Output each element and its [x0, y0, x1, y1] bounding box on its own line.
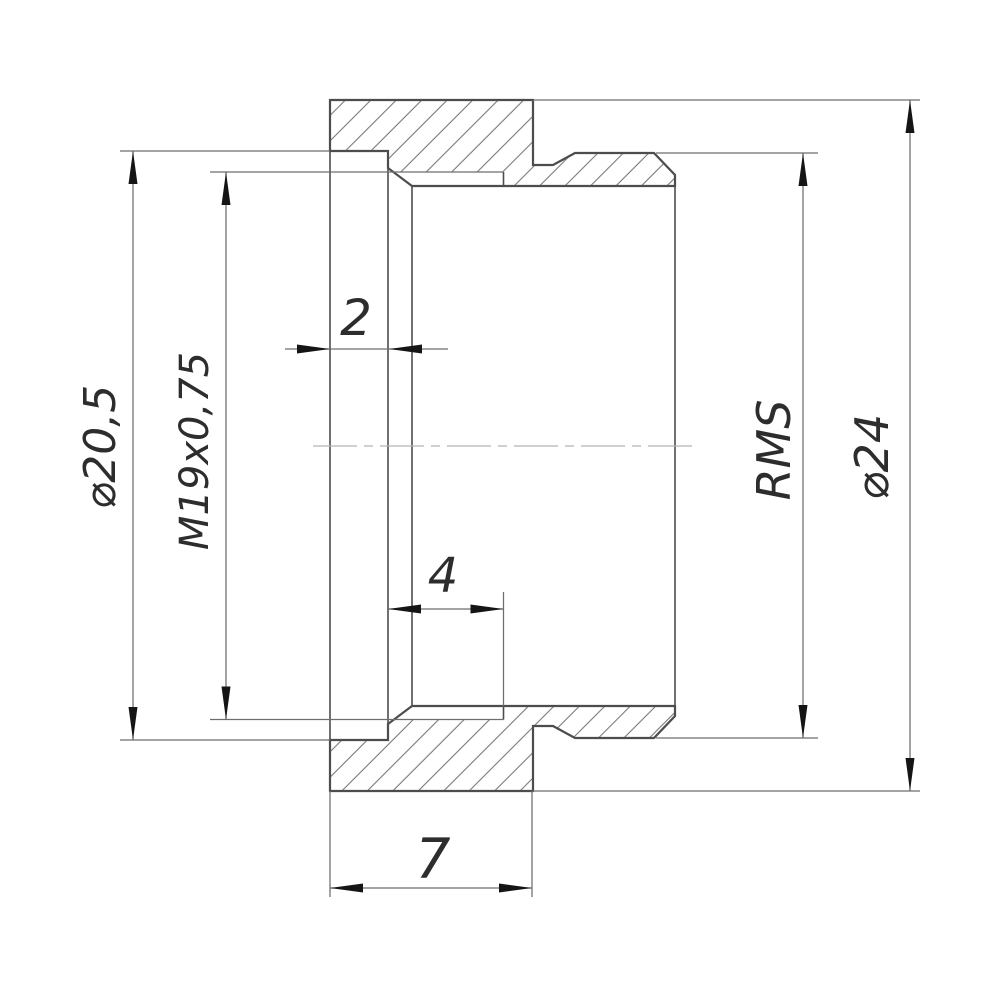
arrowhead-right	[297, 345, 330, 354]
drawing-canvas: ⌀20,5 M19x0,75 2 4	[0, 0, 1000, 1000]
dim-flange-width: 7	[330, 791, 532, 897]
upper-section-hatch	[330, 100, 675, 186]
arrowhead-down	[222, 687, 231, 720]
arrowhead-down	[906, 758, 915, 791]
arrowhead-left	[330, 884, 363, 893]
dim-thread-spec-label: M19x0,75	[172, 352, 218, 550]
dim-recess-diameter-label: ⌀20,5	[75, 385, 126, 509]
arrowhead-up	[222, 172, 231, 205]
lower-section-hatch	[330, 706, 675, 791]
arrowhead-up	[799, 153, 808, 186]
dim-outer-diameter-label: ⌀24	[845, 414, 899, 500]
dim-thread-length-label: 4	[428, 548, 459, 604]
dim-thread-length: 4	[388, 548, 504, 706]
section-view	[210, 100, 697, 791]
dim-recess-depth: 2	[285, 289, 448, 354]
arrowhead-down	[799, 705, 808, 738]
arrowhead-right	[499, 884, 532, 893]
arrowhead-right	[471, 605, 504, 614]
technical-drawing: ⌀20,5 M19x0,75 2 4	[0, 0, 1000, 1000]
dim-recess-depth-label: 2	[340, 289, 372, 347]
arrowhead-left	[388, 605, 421, 614]
arrowhead-left	[389, 345, 422, 354]
arrowhead-down	[129, 707, 138, 740]
dim-flange-width-label: 7	[416, 827, 451, 891]
arrowhead-up	[129, 151, 138, 184]
dim-rms-label: RMS	[747, 400, 801, 501]
arrowhead-up	[906, 100, 915, 133]
dim-thread-spec: M19x0,75	[172, 172, 231, 720]
